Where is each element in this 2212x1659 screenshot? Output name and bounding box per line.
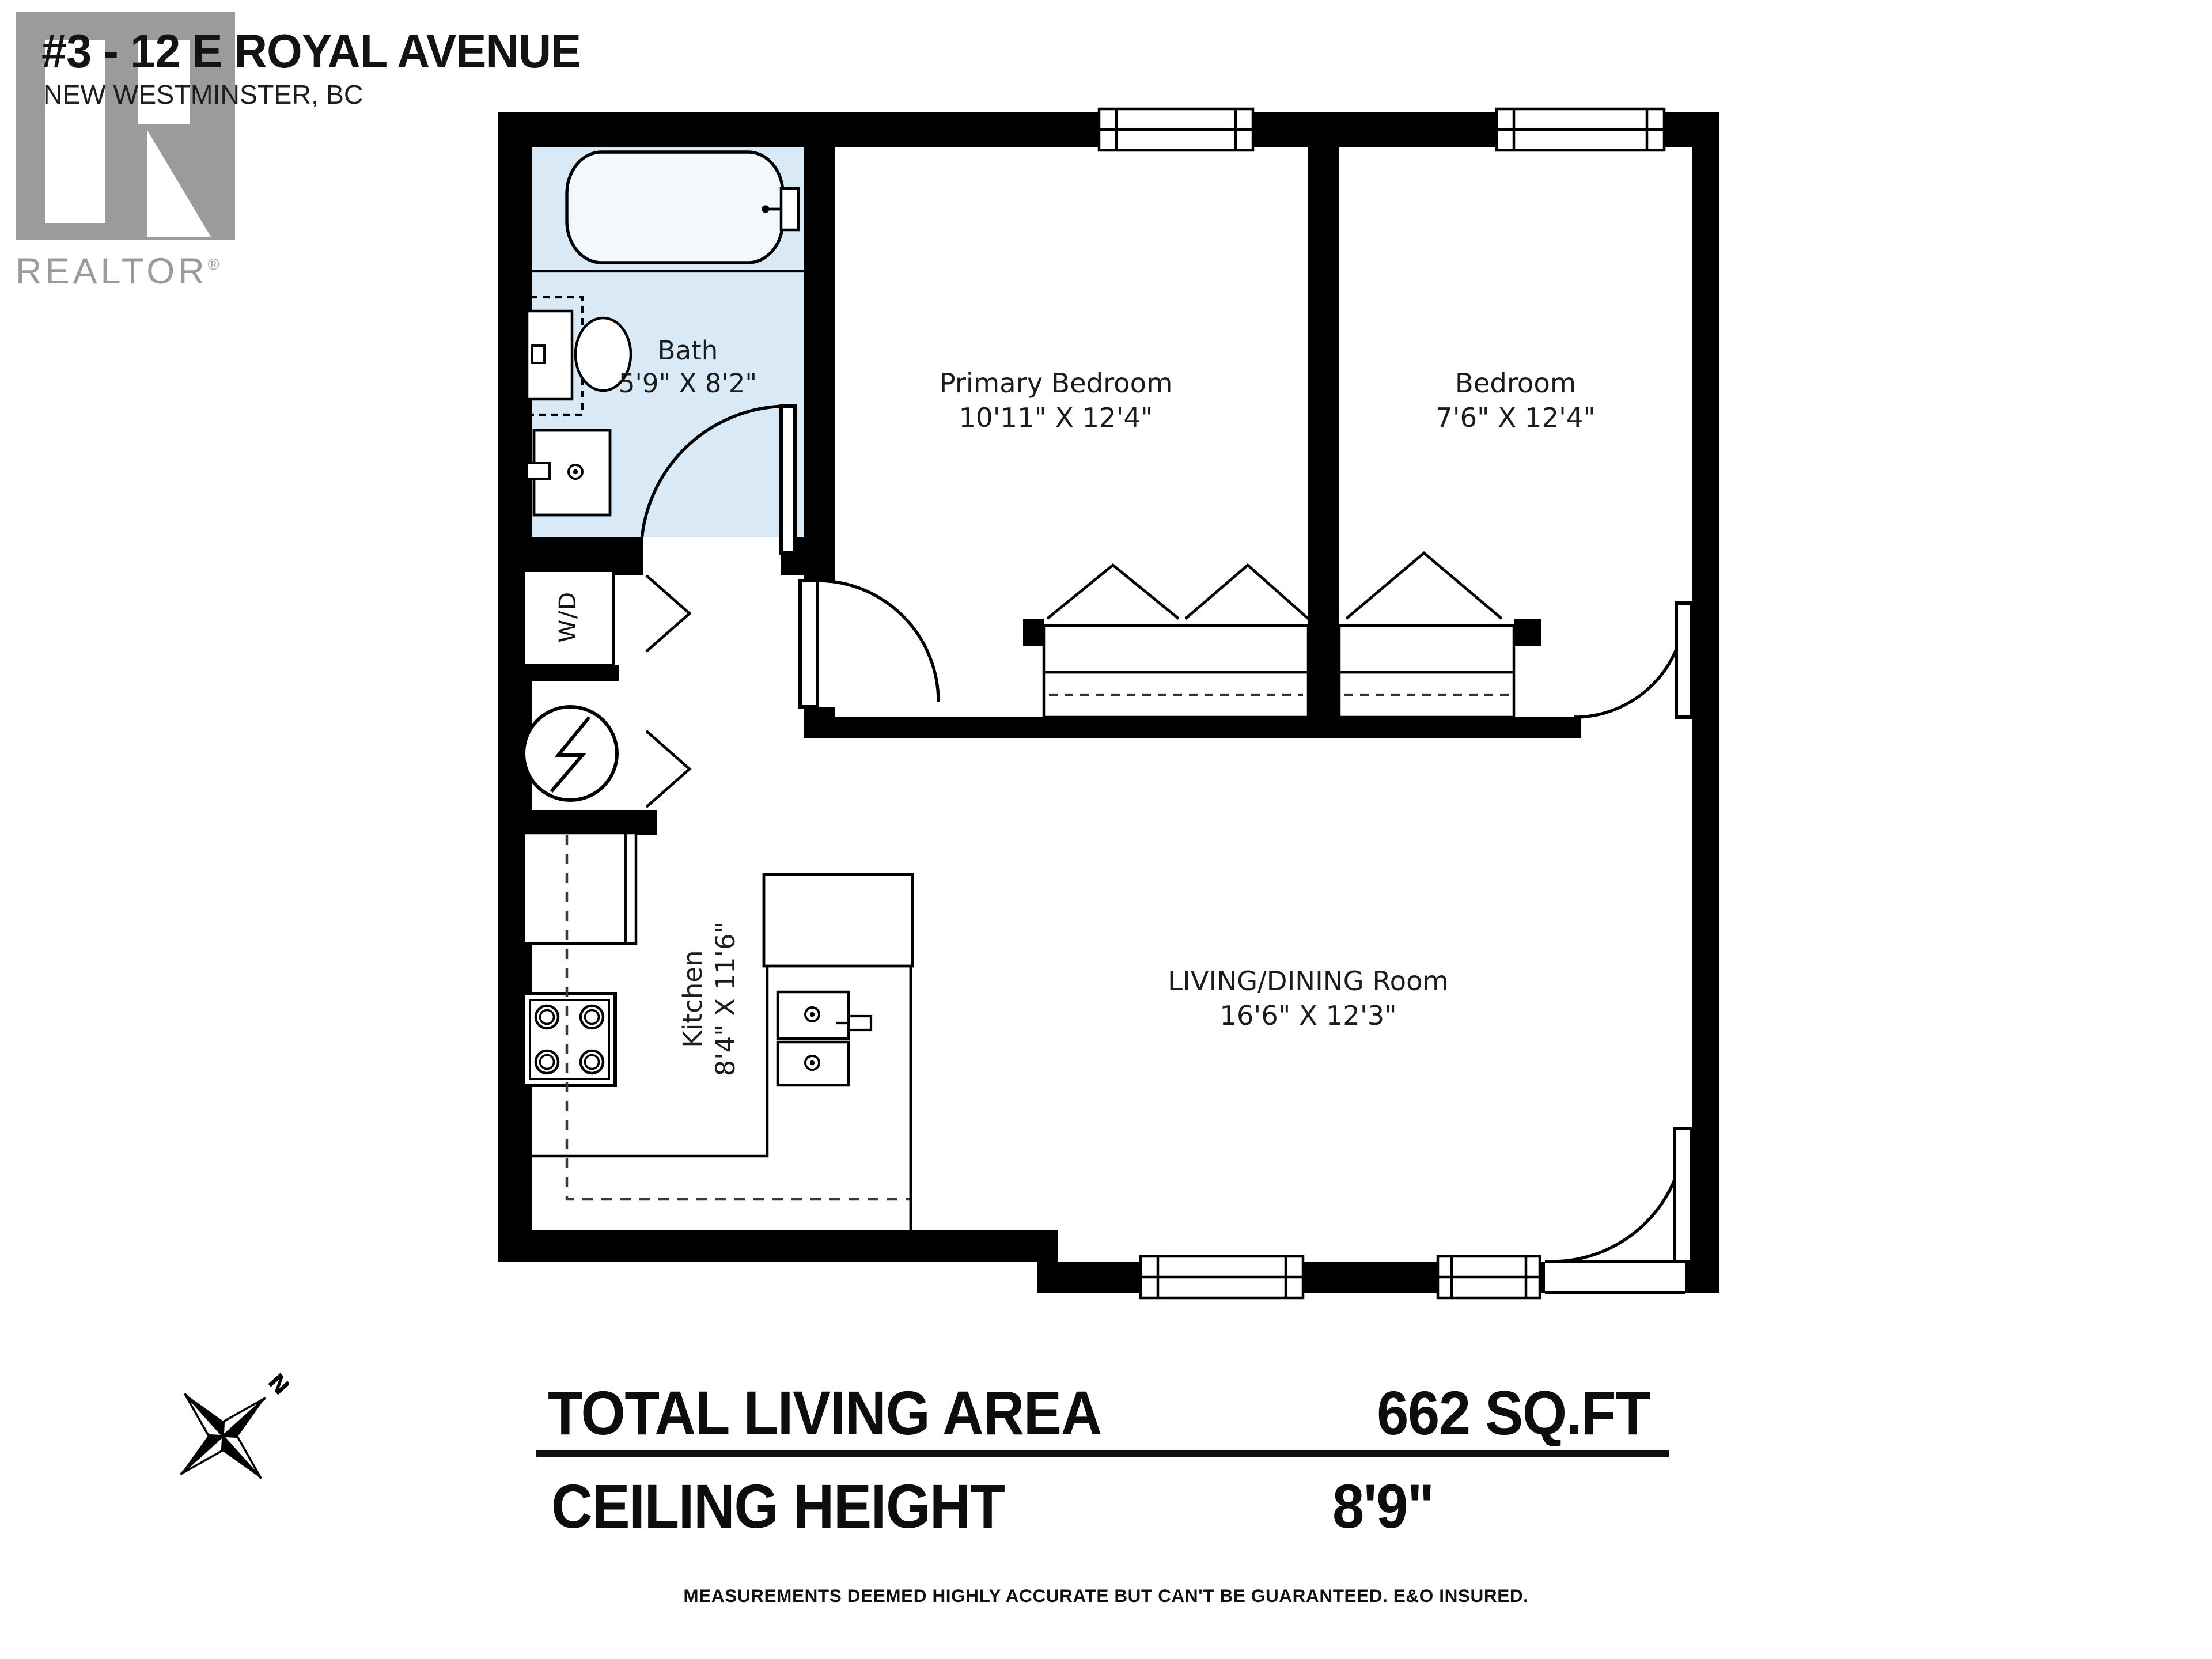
- primary-bedroom-label: Primary Bedroom 10'11" X 12'4": [940, 368, 1173, 435]
- page-title: #3 - 12 E ROYAL AVENUE: [41, 24, 581, 79]
- living-dining-dims: 16'6" X 12'3": [1168, 1000, 1449, 1034]
- compass-rose-icon: N: [157, 1370, 289, 1502]
- bifold-door-lower: [646, 731, 690, 807]
- vanity-faucet: [527, 463, 550, 479]
- bedroom-label: Bedroom 7'6" X 12'4": [1435, 368, 1596, 435]
- kitchen-label: Kitchen 8'4" X 11'6": [677, 922, 743, 1077]
- wall-bedrooms-living: [804, 717, 1581, 738]
- ceiling-height-value: 8'9": [1332, 1471, 1434, 1543]
- bedroom-dims: 7'6" X 12'4": [1435, 402, 1596, 436]
- living-dining-name: LIVING/DINING Room: [1168, 966, 1449, 1000]
- window-bedroom: [1497, 109, 1664, 150]
- wall-bath-right: [804, 147, 835, 581]
- primary-door: [800, 581, 938, 707]
- wall-left: [498, 112, 532, 1262]
- closet-bifold-3: [1346, 553, 1502, 619]
- total-area-label: TOTAL LIVING AREA: [548, 1377, 1101, 1450]
- washer-dryer-label: W/D: [555, 591, 582, 642]
- wall-closet-stub-left: [1023, 619, 1044, 646]
- window-primary-bedroom: [1099, 109, 1253, 150]
- stove: [524, 994, 615, 1085]
- wall-closet-stub-right: [1514, 619, 1541, 646]
- sink-faucet: [849, 1016, 871, 1030]
- entry-door: [1545, 1128, 1692, 1296]
- bath-label: Bath 5'9" X 8'2": [619, 335, 757, 401]
- living-dining-label: LIVING/DINING Room 16'6" X 12'3": [1168, 966, 1449, 1033]
- floorplan-drawing: [0, 0, 2212, 1659]
- wall-bedroom-partition: [1308, 147, 1339, 738]
- bifold-door-upper: [646, 575, 690, 652]
- ceiling-height-label: CEILING HEIGHT: [551, 1471, 1005, 1543]
- bedroom-door: [1574, 603, 1692, 738]
- kitchen-cabinet: [524, 833, 636, 944]
- bedroom-door-leaf: [1676, 603, 1692, 717]
- bedroom-door-arc: [1574, 607, 1685, 717]
- bath-door-leaf: [781, 406, 795, 553]
- bedroom-name: Bedroom: [1435, 368, 1596, 402]
- fridge: [764, 874, 912, 966]
- floorplan-page: REALTOR® #3 - 12 E ROYAL AVENUE NEW WEST…: [0, 0, 2212, 1659]
- closet-bifold-2: [1185, 565, 1308, 619]
- wall-kitchen-bottom: [498, 1230, 1058, 1262]
- compass-north-label: N: [263, 1370, 289, 1400]
- kitchen-name: Kitchen: [677, 922, 710, 1077]
- window-living-right: [1438, 1256, 1540, 1298]
- primary-door-leaf: [800, 581, 817, 707]
- entry-door-leaf: [1675, 1128, 1692, 1262]
- closets: [1044, 553, 1514, 717]
- registered-mark: ®: [208, 256, 219, 273]
- primary-door-arc: [817, 581, 938, 702]
- closet-bifold-1: [1047, 565, 1179, 619]
- page-subtitle: NEW WESTMINSTER, BC: [43, 81, 363, 112]
- wall-hall-bottom: [498, 810, 657, 835]
- toilet-button: [532, 346, 544, 363]
- kitchen-dims: 8'4" X 11'6": [710, 922, 743, 1077]
- window-living-left: [1141, 1256, 1303, 1298]
- footer-divider: [536, 1450, 1669, 1457]
- wall-under-wd: [498, 665, 619, 681]
- tub-faucet: [781, 188, 798, 230]
- bath-dims: 5'9" X 8'2": [619, 368, 757, 401]
- disclaimer-text: MEASUREMENTS DEEMED HIGHLY ACCURATE BUT …: [0, 1586, 2212, 1607]
- primary-bedroom-name: Primary Bedroom: [940, 368, 1173, 402]
- bathtub: [567, 152, 783, 263]
- bath-name: Bath: [619, 335, 757, 368]
- total-area-value: 662 SQ.FT: [1377, 1377, 1650, 1450]
- wall-right: [1692, 112, 1719, 1293]
- realtor-wordmark: REALTOR®: [16, 252, 240, 294]
- hall-fixtures: [524, 570, 690, 807]
- entry-door-arc: [1552, 1128, 1685, 1262]
- primary-bedroom-dims: 10'11" X 12'4": [940, 402, 1173, 436]
